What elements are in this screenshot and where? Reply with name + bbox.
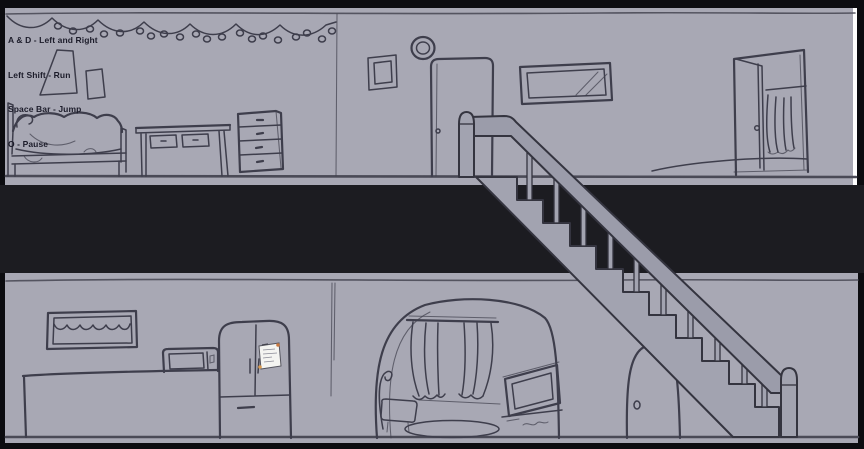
scene-sketch: [0, 0, 864, 449]
game-viewport[interactable]: A & D - Left and Right Left Shift - Run …: [0, 0, 864, 449]
controls-hud-line: Left Shift - Run: [8, 70, 98, 82]
note-magnet: [258, 365, 262, 369]
controls-hud-line: A & D - Left and Right: [8, 35, 98, 47]
controls-hud-line: Space Bar - Jump: [8, 104, 98, 116]
fridge-note: [258, 343, 281, 369]
lower-newel-post: [781, 368, 797, 437]
upper-floor-wall: [5, 8, 853, 185]
right-edge-highlight: [853, 8, 857, 185]
upper-newel-post: [459, 112, 474, 177]
upper-floor: [5, 8, 857, 185]
freezer-handle: [238, 407, 254, 408]
controls-hud: A & D - Left and Right Left Shift - Run …: [8, 12, 98, 173]
controls-hud-line: O - Pause: [8, 139, 98, 151]
note-pin: [276, 343, 280, 347]
between-floors-band: [0, 185, 864, 273]
